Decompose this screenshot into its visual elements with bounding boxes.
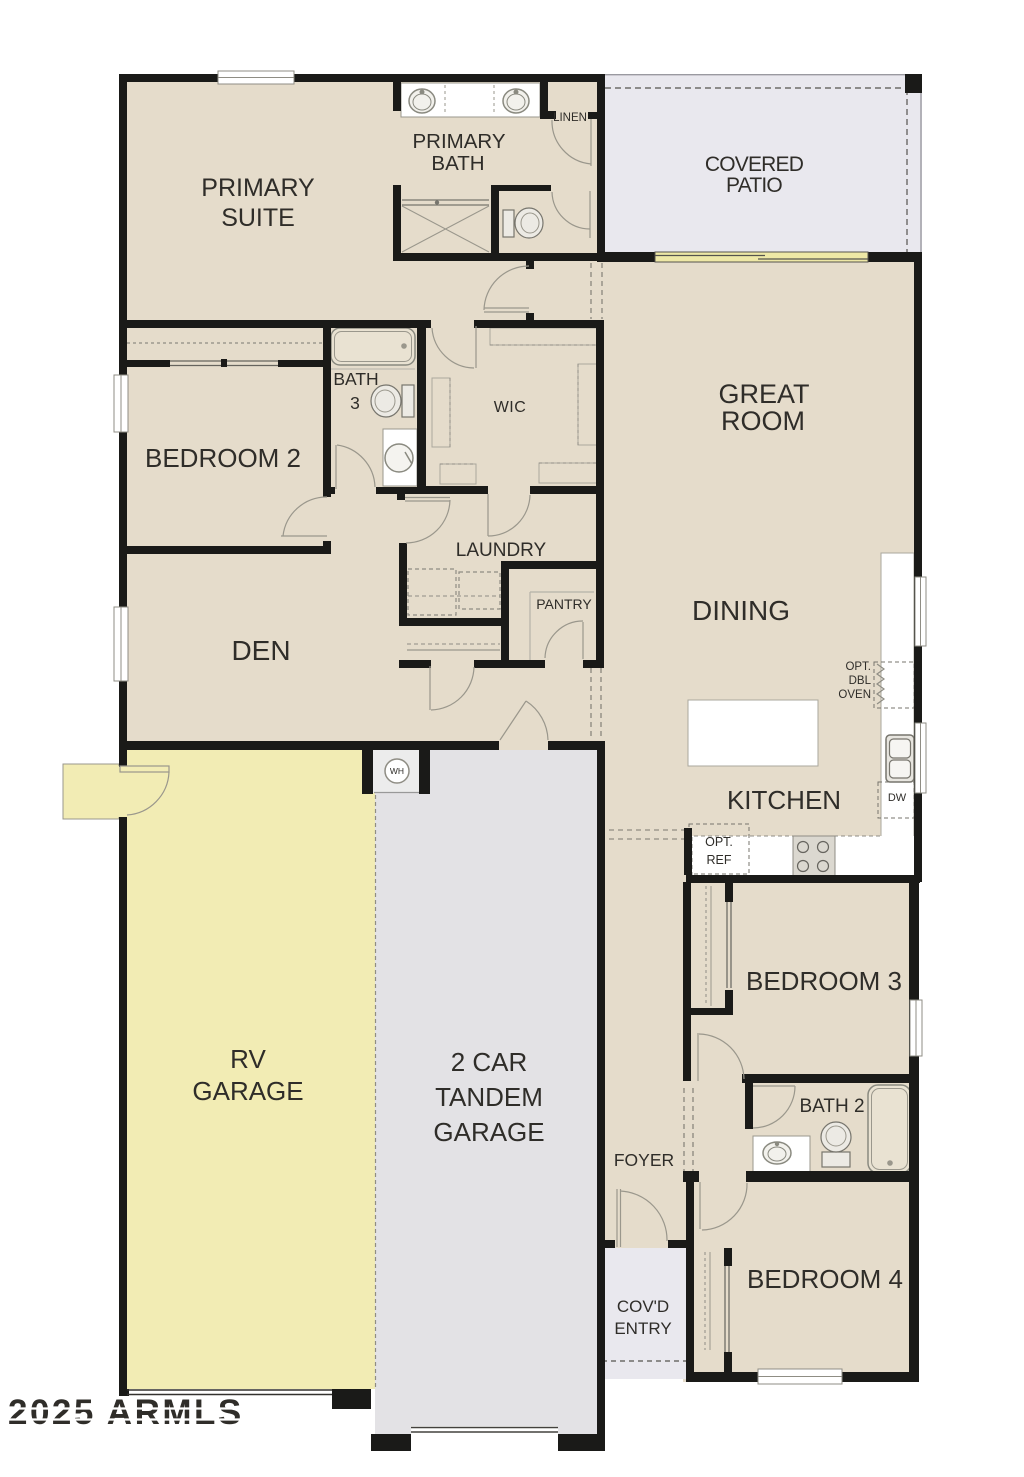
svg-text:FOYER: FOYER <box>614 1150 674 1170</box>
svg-text:BATH: BATH <box>431 152 484 175</box>
svg-text:WIC: WIC <box>494 399 527 416</box>
svg-text:SUITE: SUITE <box>221 204 295 232</box>
svg-text:WH: WH <box>390 766 404 776</box>
svg-text:BEDROOM 2: BEDROOM 2 <box>145 443 301 473</box>
svg-text:2 CAR: 2 CAR <box>451 1047 528 1077</box>
svg-text:PANTRY: PANTRY <box>536 596 592 612</box>
svg-text:TANDEM: TANDEM <box>435 1082 543 1112</box>
svg-text:REF: REF <box>707 853 732 867</box>
svg-text:DINING: DINING <box>692 595 790 626</box>
svg-text:PRIMARY: PRIMARY <box>201 174 315 202</box>
svg-text:ENTRY: ENTRY <box>614 1319 671 1338</box>
svg-text:GARAGE: GARAGE <box>433 1117 544 1147</box>
svg-text:BATH 2: BATH 2 <box>799 1096 864 1117</box>
svg-text:GARAGE: GARAGE <box>192 1076 303 1106</box>
svg-text:ROOM: ROOM <box>721 406 805 436</box>
svg-text:OVEN: OVEN <box>838 689 871 701</box>
svg-text:COVERED: COVERED <box>705 153 804 176</box>
svg-text:2025 ARMLS: 2025 ARMLS <box>8 1393 244 1432</box>
svg-text:DEN: DEN <box>231 635 290 666</box>
svg-text:KITCHEN: KITCHEN <box>727 785 841 815</box>
svg-text:OPT.: OPT. <box>705 835 733 849</box>
svg-text:PRIMARY: PRIMARY <box>412 130 505 153</box>
svg-text:3: 3 <box>350 393 360 413</box>
svg-text:PATIO: PATIO <box>726 174 782 197</box>
svg-text:OPT.: OPT. <box>845 661 871 673</box>
svg-text:GREAT: GREAT <box>718 379 809 409</box>
svg-text:BATH: BATH <box>333 369 378 389</box>
svg-text:LINEN: LINEN <box>553 112 587 124</box>
svg-text:COV'D: COV'D <box>617 1297 669 1316</box>
svg-text:DW: DW <box>888 792 907 804</box>
svg-text:RV: RV <box>230 1044 266 1074</box>
svg-text:BEDROOM 4: BEDROOM 4 <box>747 1264 903 1294</box>
svg-text:DBL: DBL <box>849 675 872 687</box>
svg-text:LAUNDRY: LAUNDRY <box>456 540 547 561</box>
svg-text:BEDROOM 3: BEDROOM 3 <box>746 966 902 996</box>
